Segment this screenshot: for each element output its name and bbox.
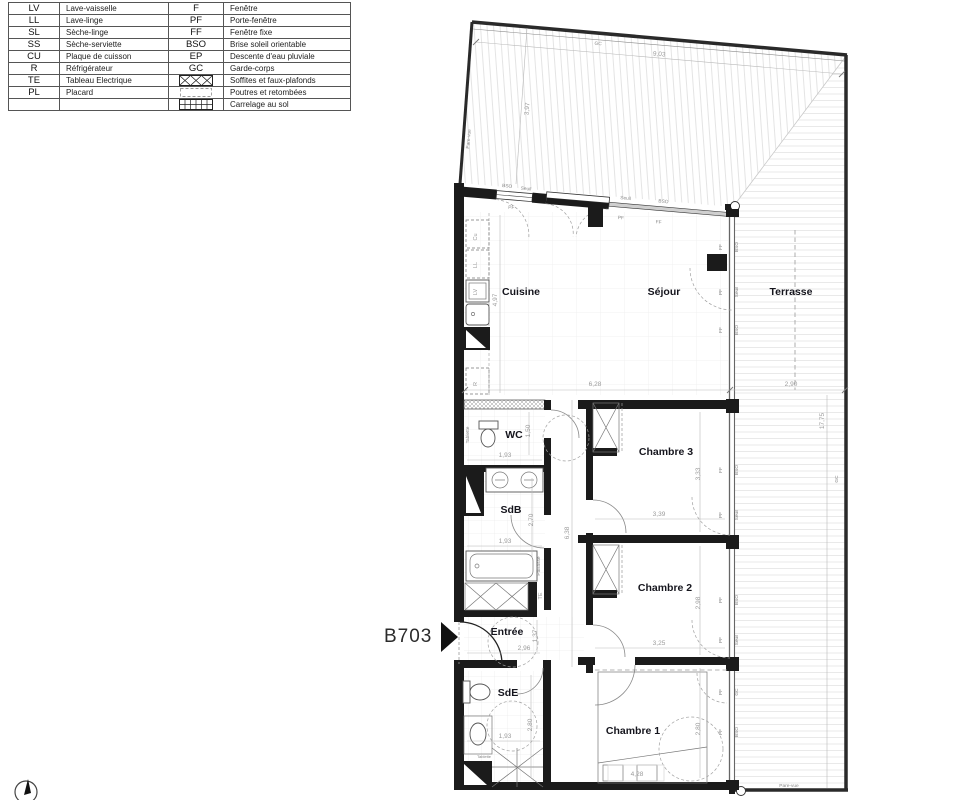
- dim-wc-depth: 1,50: [525, 424, 532, 437]
- legend-label: Fenêtre fixe: [224, 27, 351, 39]
- facade-seuil-label: Seuil: [734, 510, 740, 521]
- facade-ff-label: FF: [655, 219, 661, 225]
- legend-abbr: LV: [9, 3, 60, 15]
- dim-ch1-width: 4,28: [631, 771, 644, 778]
- dim-terrace-depth: 3,97: [524, 102, 532, 115]
- facade-ff-label: FF: [718, 327, 724, 333]
- legend-label: Poutres et retombées: [224, 87, 351, 99]
- legend-label: Placard: [60, 87, 169, 99]
- legend-abbr: PF: [169, 15, 224, 27]
- legend-label: Tableau Electrique: [60, 75, 169, 87]
- facade-bso-label: BSO: [658, 198, 669, 205]
- facade-pf-label: PF: [718, 729, 724, 735]
- legend-row: SL Sèche-linge FF Fenêtre fixe: [9, 27, 351, 39]
- dim-terrace-width: 9,03: [653, 50, 667, 58]
- facade-seuil-label: Seuil: [734, 287, 740, 298]
- legend-label: Réfrigérateur: [60, 63, 169, 75]
- dim-ch1-depth: 2,80: [695, 722, 702, 735]
- legend-abbr: LL: [9, 15, 60, 27]
- facade-seuil-label: Seuil: [734, 635, 740, 646]
- pare-vue-bottom-label: Pare-vue: [779, 783, 799, 789]
- legend-abbr: SS: [9, 39, 60, 51]
- legend-row: SS Sèche-serviette BSO Brise soleil orie…: [9, 39, 351, 51]
- facade-seuil-label: Seuil: [520, 186, 531, 193]
- legend-label: Soffites et faux-plafonds: [224, 75, 351, 87]
- gc-top-label: GC: [594, 41, 602, 48]
- room-label-cuisine: Cuisine: [502, 286, 540, 298]
- legend-abbr: FF: [169, 27, 224, 39]
- gc-right-label: GC: [834, 475, 840, 483]
- floor-plan: GC 9,03 3,97 Pare-vue 17,75 GC Pare-vue …: [0, 0, 966, 800]
- legend-label: [60, 99, 169, 111]
- poutres-icon: [169, 87, 224, 99]
- legend-row: CU Plaque de cuisson EP Descente d'eau p…: [9, 51, 351, 63]
- legend-abbr: PL: [9, 87, 60, 99]
- facade-pf-label: PF: [718, 512, 724, 518]
- legend-row: LV Lave-vaisselle F Fenêtre: [9, 3, 351, 15]
- facade-pf-label: PF: [718, 637, 724, 643]
- north-arrow-icon: [15, 779, 37, 800]
- room-label-entree: Entrée: [491, 626, 524, 638]
- dim-sde-width: 1,93: [499, 733, 512, 740]
- washer-label: LL: [473, 262, 479, 268]
- room-label-sejour: Séjour: [648, 286, 681, 298]
- dim-sdb-width: 1,93: [499, 538, 512, 545]
- room-label-chambre2: Chambre 2: [638, 582, 692, 594]
- room-label-terrasse: Terrasse: [769, 286, 812, 298]
- legend-abbr: EP: [169, 51, 224, 63]
- room-label-chambre3: Chambre 3: [639, 446, 693, 458]
- facade-bso-label: BSO: [734, 595, 740, 605]
- paillasse-label: Paillasse: [536, 556, 542, 576]
- facade-pf-label: PF: [618, 215, 625, 222]
- legend-label: Porte-fenêtre: [224, 15, 351, 27]
- legend-label: Descente d'eau pluviale: [224, 51, 351, 63]
- legend-abbr: TE: [9, 75, 60, 87]
- legend-label: Garde-corps: [224, 63, 351, 75]
- legend-table: LV Lave-vaisselle F Fenêtre LL Lave-ling…: [8, 2, 351, 111]
- legend-label: Brise soleil orientable: [224, 39, 351, 51]
- facade-pf-label: PF: [718, 689, 724, 695]
- unit-label: B703: [384, 626, 432, 647]
- tablette-sde-label: Tablette: [477, 754, 492, 759]
- dim-ch2-depth: 2,98: [695, 596, 702, 609]
- legend-label: Lave-vaisselle: [60, 3, 169, 15]
- legend-abbr: BSO: [169, 39, 224, 51]
- facade-gc-label: GC: [734, 688, 740, 696]
- dim-terrasse-width: 2,90: [785, 381, 798, 388]
- tablette-wc-label: Tablette: [465, 426, 471, 443]
- dim-sejour-width: 6,28: [589, 381, 602, 388]
- te-label: TE: [538, 592, 544, 599]
- legend-abbr: GC: [169, 63, 224, 75]
- dim-ch3-depth: 3,33: [695, 467, 702, 480]
- dim-terrace-side: 17,75: [819, 412, 826, 429]
- legend-row: TE Tableau Electrique Soffites et faux-p…: [9, 75, 351, 87]
- dishwasher-label: LV: [473, 289, 479, 296]
- dim-entree-width: 2,96: [518, 645, 531, 652]
- cooktop-label: Cu: [473, 233, 479, 240]
- legend-label: Carrelage au sol: [224, 99, 351, 111]
- carrelage-icon: [169, 99, 224, 111]
- legend-label: Fenêtre: [224, 3, 351, 15]
- dim-sde-depth: 2,80: [527, 718, 534, 731]
- dim-sdb-depth: 2,70: [528, 513, 535, 526]
- legend-row: LL Lave-linge PF Porte-fenêtre: [9, 15, 351, 27]
- dim-wc-width: 1,93: [499, 452, 512, 459]
- unit-callout: B703: [384, 622, 458, 652]
- room-label-chambre1: Chambre 1: [606, 725, 660, 737]
- facade-bso-label: BSO: [502, 183, 513, 190]
- legend-abbr: SL: [9, 27, 60, 39]
- facade-bso-label: BSO: [734, 465, 740, 475]
- legend-label: Plaque de cuisson: [60, 51, 169, 63]
- legend-row: Carrelage au sol: [9, 99, 351, 111]
- facade-ff-label: FF: [718, 467, 724, 473]
- soffites-icon: [169, 75, 224, 87]
- room-label-wc: WC: [505, 429, 523, 441]
- legend-row: PL Placard Poutres et retombées: [9, 87, 351, 99]
- unit-arrow-icon: [441, 622, 458, 652]
- dim-cuisine: 4,97: [492, 293, 499, 306]
- room-label-sdb: SdB: [501, 504, 522, 516]
- legend-abbr: R: [9, 63, 60, 75]
- facade-pf-label: PF: [718, 597, 724, 603]
- floor-plan-sheet: LV Lave-vaisselle F Fenêtre LL Lave-ling…: [0, 0, 966, 800]
- facade-bso-label: BSO: [734, 242, 740, 252]
- legend-abbr: [9, 99, 60, 111]
- legend-abbr: F: [169, 3, 224, 15]
- legend-label: Sèche-serviette: [60, 39, 169, 51]
- legend-abbr: CU: [9, 51, 60, 63]
- legend-label: Sèche-linge: [60, 27, 169, 39]
- facade-ff-label: FF: [718, 244, 724, 250]
- facade-pf-label: PF: [508, 205, 515, 212]
- fridge-label: R: [473, 382, 479, 386]
- dim-ch3-width: 3,39: [653, 511, 666, 518]
- dim-couloir: 6,38: [564, 526, 571, 539]
- legend-label: Lave-linge: [60, 15, 169, 27]
- room-label-sde: SdE: [498, 687, 518, 699]
- facade-bso-label: BSO: [734, 325, 740, 335]
- dim-entree-depth: 1,37: [532, 629, 539, 642]
- facade-bso-label: BSO: [734, 727, 740, 737]
- dim-ch2-width: 3,25: [653, 640, 666, 647]
- facade-pf-label: PF: [718, 289, 724, 295]
- legend-row: R Réfrigérateur GC Garde-corps: [9, 63, 351, 75]
- facade-seuil-label: Seuil: [620, 195, 631, 202]
